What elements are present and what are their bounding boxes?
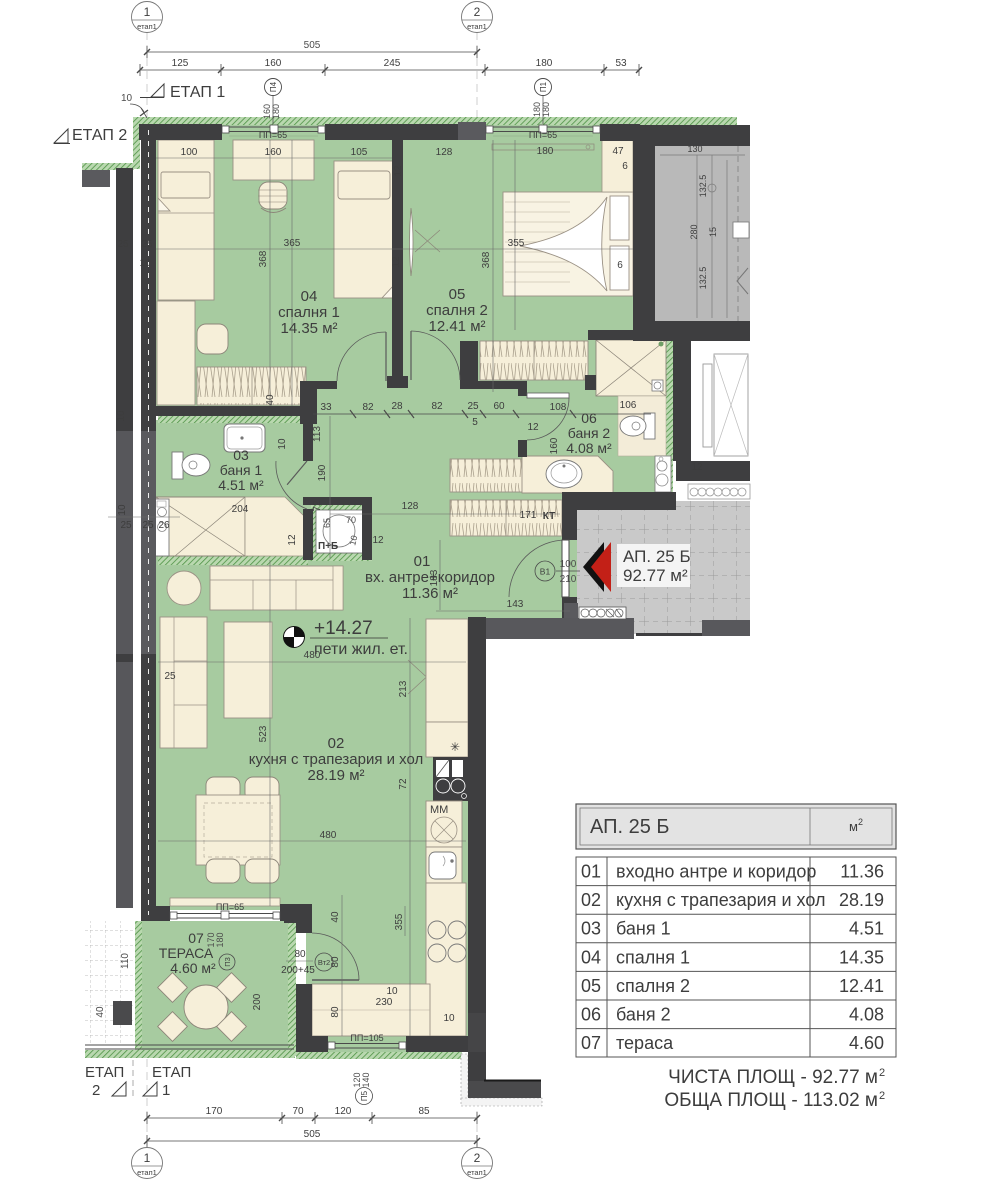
svg-text:40: 40: [95, 1006, 106, 1018]
svg-text:4.60 м²: 4.60 м²: [170, 960, 216, 976]
svg-text:171: 171: [520, 510, 537, 521]
svg-text:баня 1: баня 1: [220, 462, 263, 478]
svg-text:2: 2: [474, 1151, 481, 1165]
svg-text:12: 12: [287, 534, 298, 546]
svg-text:12: 12: [372, 535, 384, 546]
svg-text:П4: П4: [269, 81, 278, 92]
svg-text:07: 07: [581, 1033, 601, 1053]
svg-text:25: 25: [141, 239, 153, 250]
svg-text:2: 2: [92, 1082, 100, 1099]
svg-text:110: 110: [120, 953, 131, 969]
svg-text:365: 365: [284, 238, 301, 249]
svg-text:етап1: етап1: [137, 1168, 157, 1177]
svg-text:505: 505: [304, 40, 321, 51]
svg-text:4.51: 4.51: [849, 919, 884, 939]
svg-text:ЕТАП 1: ЕТАП 1: [170, 84, 225, 101]
svg-text:200+45: 200+45: [281, 965, 315, 976]
svg-text:ПП=65: ПП=65: [529, 130, 557, 140]
svg-text:5: 5: [472, 417, 478, 428]
svg-text:204: 204: [232, 504, 249, 515]
svg-text:132.5: 132.5: [698, 267, 708, 290]
svg-text:07: 07: [188, 930, 204, 946]
svg-text:10: 10: [277, 438, 288, 450]
svg-text:4.51 м²: 4.51 м²: [218, 477, 264, 493]
svg-text:128: 128: [436, 147, 453, 158]
svg-text:213: 213: [398, 680, 409, 697]
svg-text:368: 368: [481, 251, 492, 268]
svg-text:ПП=65: ПП=65: [216, 902, 244, 912]
svg-text:ТЕРАСА: ТЕРАСА: [159, 945, 214, 961]
svg-text:10: 10: [386, 986, 398, 997]
svg-text:вх. антре+коридор: вх. антре+коридор: [365, 569, 495, 586]
svg-text:10: 10: [443, 1013, 455, 1024]
svg-text:1: 1: [144, 5, 151, 19]
svg-text:25: 25: [467, 401, 479, 412]
svg-text:03: 03: [581, 919, 601, 939]
svg-text:14.35 м²: 14.35 м²: [280, 320, 337, 337]
svg-text:210: 210: [560, 574, 577, 585]
svg-text:2: 2: [879, 1090, 885, 1102]
svg-text:80: 80: [294, 949, 306, 960]
svg-text:1: 1: [162, 1082, 170, 1099]
svg-text:ПП=65: ПП=65: [259, 130, 287, 140]
svg-text:кухня с трапезария и хол: кухня с трапезария и хол: [616, 890, 825, 910]
svg-text:01: 01: [414, 553, 431, 570]
svg-text:180: 180: [536, 58, 553, 69]
svg-text:спалня 2: спалня 2: [426, 302, 488, 319]
svg-text:етап1: етап1: [467, 1168, 487, 1177]
svg-text:ММ: ММ: [430, 804, 448, 816]
svg-text:04: 04: [581, 947, 601, 967]
svg-text:2: 2: [879, 1067, 885, 1079]
svg-text:12: 12: [391, 256, 402, 268]
svg-text:200: 200: [252, 993, 263, 1010]
svg-text:баня 2: баня 2: [568, 425, 611, 441]
svg-text:85: 85: [418, 1106, 430, 1117]
svg-text:72: 72: [312, 500, 323, 512]
svg-text:106: 106: [620, 400, 637, 411]
svg-text:180: 180: [541, 102, 551, 117]
svg-text:125: 125: [172, 58, 189, 69]
svg-text:65: 65: [322, 518, 332, 528]
svg-text:входно антре и коридор: входно антре и коридор: [616, 862, 816, 882]
svg-text:П5: П5: [360, 1090, 369, 1101]
svg-text:128: 128: [402, 501, 419, 512]
svg-text:245: 245: [384, 58, 401, 69]
svg-text:06: 06: [581, 1005, 601, 1025]
svg-text:12: 12: [527, 422, 539, 433]
svg-text:280: 280: [689, 224, 699, 239]
svg-text:ЧИСТА ПЛОЩ - 92.77 м: ЧИСТА ПЛОЩ - 92.77 м: [668, 1067, 878, 1088]
svg-text:ПП=105: ПП=105: [350, 1033, 383, 1043]
svg-text:Вт2: Вт2: [318, 958, 330, 967]
svg-text:П1: П1: [539, 81, 548, 92]
svg-text:10: 10: [116, 410, 127, 422]
svg-text:В1: В1: [540, 567, 551, 577]
svg-text:160: 160: [265, 58, 282, 69]
svg-text:10: 10: [139, 258, 151, 269]
svg-text:05: 05: [449, 286, 466, 303]
svg-text:82: 82: [431, 401, 443, 412]
svg-text:03: 03: [233, 447, 249, 463]
svg-text:04: 04: [301, 288, 318, 305]
svg-text:80: 80: [330, 1006, 341, 1018]
svg-text:113: 113: [312, 426, 323, 442]
svg-text:м: м: [849, 819, 858, 834]
svg-text:25: 25: [164, 671, 176, 682]
svg-text:6: 6: [622, 161, 628, 172]
svg-text:06: 06: [581, 410, 597, 426]
svg-text:12.41 м²: 12.41 м²: [428, 318, 485, 335]
svg-text:спалня 1: спалня 1: [278, 304, 340, 321]
svg-text:140: 140: [361, 1072, 371, 1087]
svg-text:28.19 м²: 28.19 м²: [307, 767, 364, 784]
svg-text:2: 2: [858, 817, 863, 827]
svg-text:АП. 25 Б: АП. 25 Б: [590, 816, 670, 838]
svg-text:100: 100: [181, 147, 198, 158]
svg-text:12: 12: [393, 165, 404, 177]
svg-text:108: 108: [550, 402, 567, 413]
svg-text:спалня 1: спалня 1: [616, 947, 690, 967]
svg-text:25: 25: [117, 239, 129, 250]
svg-text:26: 26: [158, 520, 170, 531]
svg-text:6: 6: [617, 260, 623, 271]
svg-text:355: 355: [508, 238, 525, 249]
svg-text:33: 33: [320, 402, 332, 413]
svg-text:25: 25: [120, 520, 132, 531]
svg-text:230: 230: [376, 997, 393, 1008]
svg-text:505: 505: [304, 1129, 321, 1140]
svg-text:15: 15: [708, 227, 718, 237]
svg-text:пети жил. ет.: пети жил. ет.: [314, 641, 408, 658]
svg-text:40: 40: [330, 911, 341, 923]
svg-text:180: 180: [215, 932, 225, 947]
svg-text:4.08 м²: 4.08 м²: [566, 440, 612, 456]
svg-text:11.36 м²: 11.36 м²: [402, 585, 458, 602]
svg-text:АП. 25 Б: АП. 25 Б: [623, 547, 691, 566]
svg-text:170: 170: [206, 1106, 223, 1117]
svg-text:тераса: тераса: [616, 1033, 674, 1053]
svg-text:02: 02: [581, 890, 601, 910]
svg-text:01: 01: [581, 862, 601, 882]
svg-text:120: 120: [335, 1106, 352, 1117]
svg-text:кухня с трапезария и хол: кухня с трапезария и хол: [249, 751, 424, 768]
svg-text:25: 25: [142, 520, 154, 531]
svg-text:ОБЩА ПЛОЩ - 113.02 м: ОБЩА ПЛОЩ - 113.02 м: [664, 1090, 878, 1111]
svg-text:П3: П3: [223, 957, 232, 967]
svg-text:10: 10: [117, 504, 128, 516]
svg-text:53: 53: [615, 58, 627, 69]
svg-text:етап1: етап1: [137, 22, 157, 31]
svg-text:180: 180: [271, 104, 281, 119]
svg-text:02: 02: [328, 735, 345, 752]
svg-text:05: 05: [581, 976, 601, 996]
svg-text:105: 105: [351, 147, 368, 158]
svg-text:етап1: етап1: [467, 22, 487, 31]
svg-text:523: 523: [258, 725, 269, 742]
svg-text:72: 72: [398, 778, 409, 790]
svg-text:баня 1: баня 1: [616, 919, 671, 939]
svg-text:4.08: 4.08: [849, 1005, 884, 1025]
svg-text:КТ: КТ: [543, 511, 555, 522]
svg-text:60: 60: [493, 401, 505, 412]
svg-text:70: 70: [292, 1106, 304, 1117]
svg-text:баня 2: баня 2: [616, 1005, 671, 1025]
svg-text:ЕТАП: ЕТАП: [152, 1064, 191, 1081]
svg-text:143: 143: [507, 599, 524, 610]
svg-text:132.5: 132.5: [698, 175, 708, 198]
svg-text:82: 82: [362, 402, 374, 413]
svg-text:+14.27: +14.27: [314, 618, 373, 639]
svg-text:47: 47: [612, 146, 624, 157]
svg-text:70: 70: [346, 515, 356, 525]
svg-text:спалня 2: спалня 2: [616, 976, 690, 996]
svg-text:1: 1: [144, 1151, 151, 1165]
svg-text:11.36: 11.36: [840, 862, 884, 882]
svg-text:28: 28: [391, 401, 403, 412]
svg-text:190: 190: [317, 464, 328, 481]
svg-text:П+Б: П+Б: [318, 541, 338, 552]
svg-text:4.60: 4.60: [849, 1033, 884, 1053]
svg-text:92.77 м²: 92.77 м²: [623, 566, 688, 585]
svg-text:480: 480: [320, 830, 337, 841]
svg-text:12: 12: [691, 462, 703, 473]
svg-text:10: 10: [121, 93, 133, 104]
svg-text:✳: ✳: [450, 740, 460, 754]
svg-text:40: 40: [265, 394, 276, 406]
svg-text:160: 160: [549, 437, 560, 454]
svg-text:160: 160: [265, 147, 282, 158]
svg-text:12.41: 12.41: [839, 976, 884, 996]
svg-text:180: 180: [537, 146, 554, 157]
svg-text:ЕТАП 2: ЕТАП 2: [72, 127, 127, 144]
svg-text:ЕТАП: ЕТАП: [85, 1064, 124, 1081]
svg-text:368: 368: [258, 250, 269, 267]
svg-text:2: 2: [474, 5, 481, 19]
svg-text:100: 100: [560, 559, 577, 570]
svg-text:28.19: 28.19: [839, 890, 884, 910]
svg-text:355: 355: [394, 913, 405, 930]
svg-text:14.35: 14.35: [839, 947, 884, 967]
